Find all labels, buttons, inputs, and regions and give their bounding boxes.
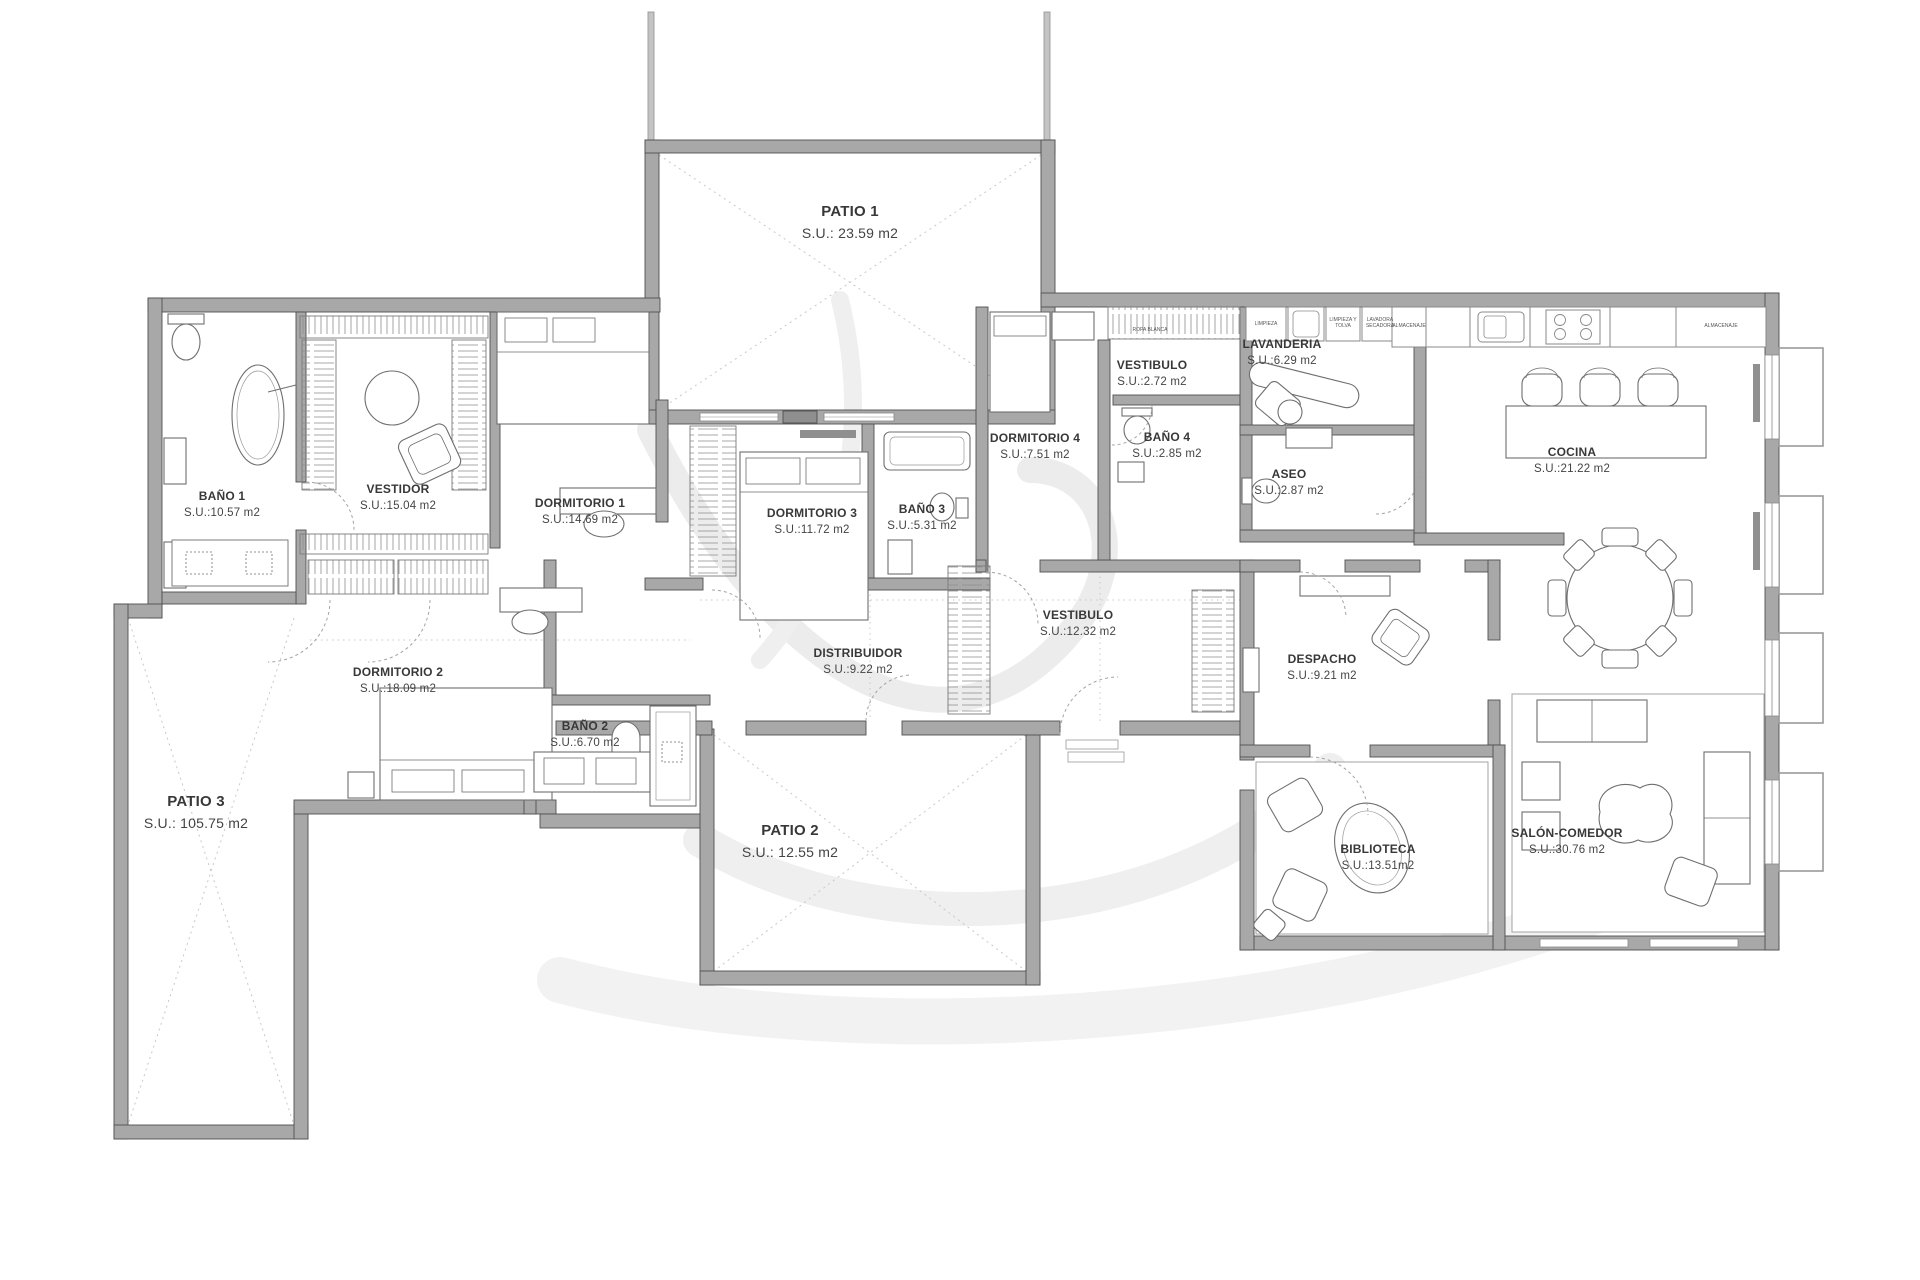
floor-plan-page: PATIO 1 S.U.: 23.59 m2 BAÑO 1 S.U.:10.57… [0, 0, 1920, 1280]
floor-plan-drawing [0, 0, 1920, 1280]
cabinets-layer [1246, 307, 1766, 347]
